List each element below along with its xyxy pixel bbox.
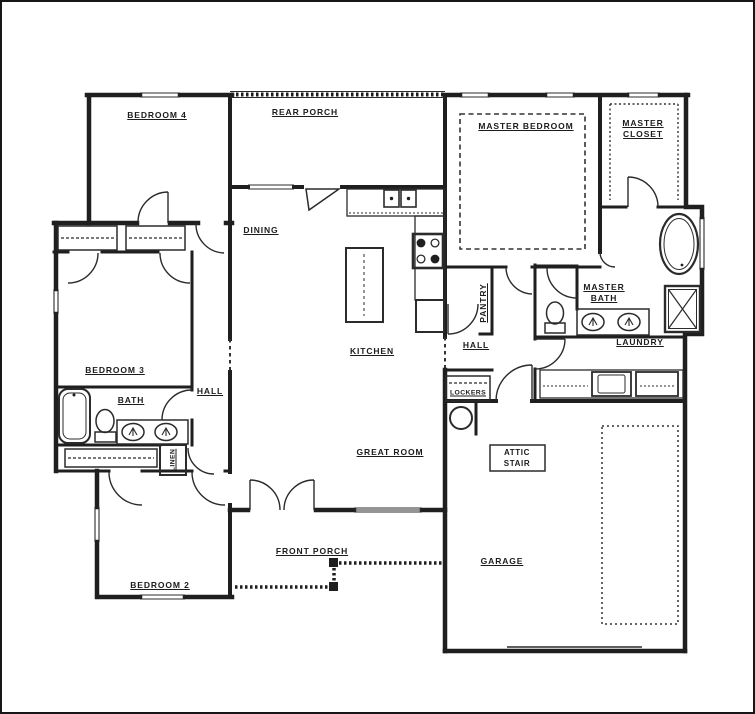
water-heater-icon [450, 407, 472, 429]
french-door-arc [284, 480, 314, 510]
door-arc [109, 472, 142, 505]
laundry-counter [540, 370, 683, 398]
garage-storage-outline [602, 426, 678, 624]
room-label-attic-stair: ATTIC STAIR [504, 447, 530, 469]
toilet-icon [547, 302, 564, 324]
room-label-bedroom3: BEDROOM 3 [85, 365, 145, 375]
porch-edges [230, 92, 445, 592]
french-door-arc [250, 480, 280, 510]
door-arc [196, 223, 224, 253]
door-arc [162, 390, 192, 420]
room-label-bath: BATH [118, 395, 145, 405]
room-label-hall-right: HALL [463, 340, 489, 350]
walls [54, 95, 702, 651]
kitchen-fixtures [346, 189, 445, 332]
room-label-laundry: LAUNDRY [616, 337, 664, 347]
window [700, 217, 704, 270]
porch-post [329, 582, 338, 591]
door-arc [496, 365, 532, 401]
closets [58, 226, 545, 475]
door-arc [535, 339, 565, 369]
room-label-bedroom2: BEDROOM 2 [130, 580, 190, 590]
door-arc [68, 253, 98, 283]
front-porch-edge [235, 563, 445, 587]
floor-plan-drawing [2, 2, 755, 714]
room-label-master-bath: MASTER BATH [583, 282, 624, 304]
door-arc [448, 304, 478, 334]
room-label-master-closet: MASTER CLOSET [622, 118, 663, 140]
door-arc [547, 268, 577, 298]
room-label-pantry: PANTRY [478, 283, 488, 322]
toilet-icon [96, 410, 114, 433]
room-label-front-porch: FRONT PORCH [276, 546, 348, 556]
room-label-lockers: LOCKERS [450, 390, 486, 397]
lockers-cabinet [446, 376, 490, 401]
room-label-kitchen: KITCHEN [350, 346, 394, 356]
window [95, 507, 99, 542]
garden-tub-icon [660, 214, 698, 274]
double-vanity [577, 309, 649, 335]
window [140, 595, 185, 599]
floor-plan: BEDROOM 4 REAR PORCH MASTER BEDROOM MAST… [0, 0, 755, 714]
room-label-linen: LINEN [170, 449, 177, 471]
window [248, 185, 294, 189]
door-arc [160, 253, 190, 283]
room-label-dining: DINING [243, 225, 278, 235]
door-arc [628, 177, 658, 207]
door-swing-triangle [306, 189, 339, 210]
room-label-hall-left: HALL [197, 386, 223, 396]
room-label-bedroom4: BEDROOM 4 [127, 110, 187, 120]
refrigerator-icon [416, 300, 444, 332]
porch-post [329, 558, 338, 567]
door-arc [506, 267, 532, 294]
window [627, 93, 660, 97]
door-arc [192, 472, 225, 505]
door-arc [138, 192, 168, 223]
window [545, 93, 575, 97]
room-label-garage: GARAGE [481, 556, 524, 566]
tray-ceiling-outline [460, 114, 585, 249]
dryer-icon [636, 372, 678, 396]
room-label-great-room: GREAT ROOM [357, 447, 424, 457]
kitchen-counter [415, 216, 445, 300]
room-label-rear-porch: REAR PORCH [272, 107, 338, 117]
window [140, 93, 180, 97]
door-arc [600, 252, 615, 267]
room-label-master-bedroom: MASTER BEDROOM [478, 121, 573, 131]
range-icon [413, 234, 443, 268]
window [354, 508, 422, 512]
window [460, 93, 490, 97]
window [54, 289, 58, 314]
